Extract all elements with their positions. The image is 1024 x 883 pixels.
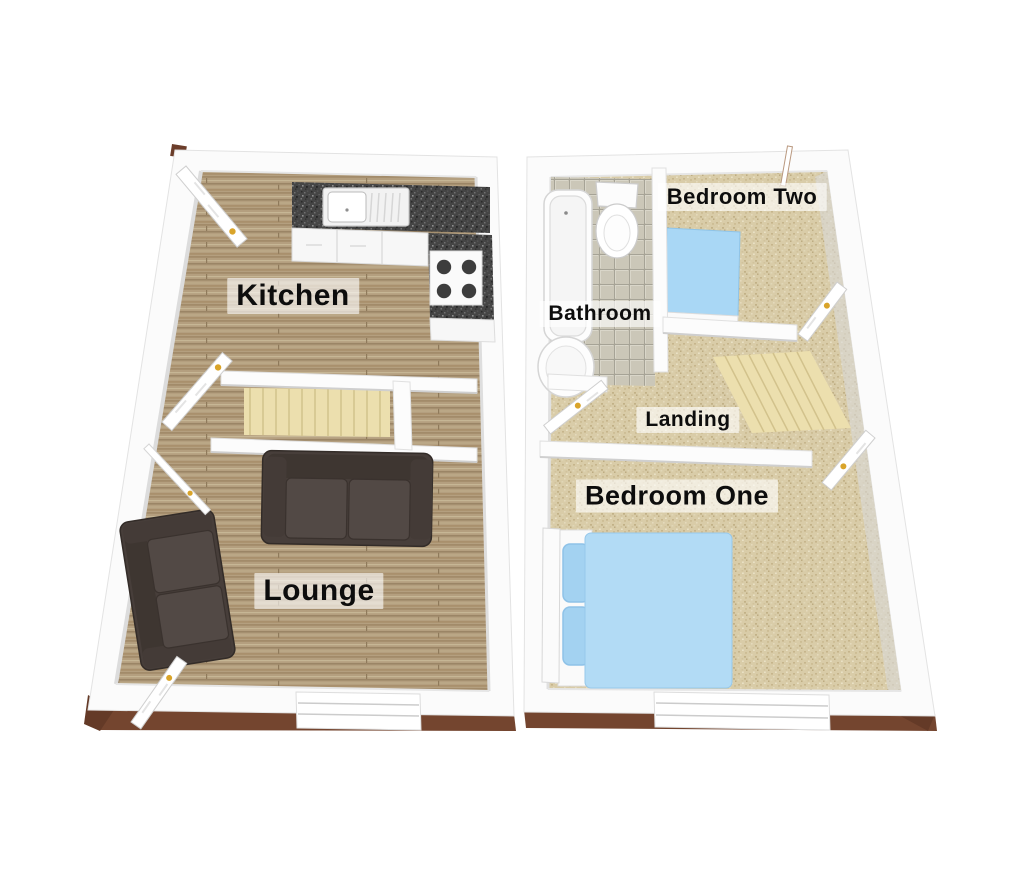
room-label-landing: Landing: [636, 407, 739, 433]
staircase-ground-icon: [244, 388, 390, 437]
double-bed-icon: [542, 528, 732, 688]
room-label-bathroom: Bathroom: [539, 301, 660, 327]
room-label-bedroom-two: Bedroom Two: [658, 183, 827, 211]
hob-icon: [430, 251, 482, 305]
first-floor-plan: [524, 146, 937, 731]
sofa-large-icon: [261, 451, 433, 547]
floorplan-canvas: [0, 0, 1024, 883]
floor-plan-image: Kitchen Lounge Bathroom Bedroom Two Land…: [0, 0, 1024, 883]
room-label-lounge: Lounge: [254, 573, 383, 609]
first-window-icon: [654, 692, 830, 730]
toilet-icon: [596, 182, 638, 258]
ground-window-icon: [296, 692, 421, 730]
kitchen-sink-icon: [323, 188, 409, 226]
ground-floor-plan: [84, 144, 516, 731]
room-label-kitchen: Kitchen: [227, 278, 359, 314]
room-label-bedroom-one: Bedroom One: [576, 480, 778, 513]
single-bed-icon: [664, 228, 740, 331]
